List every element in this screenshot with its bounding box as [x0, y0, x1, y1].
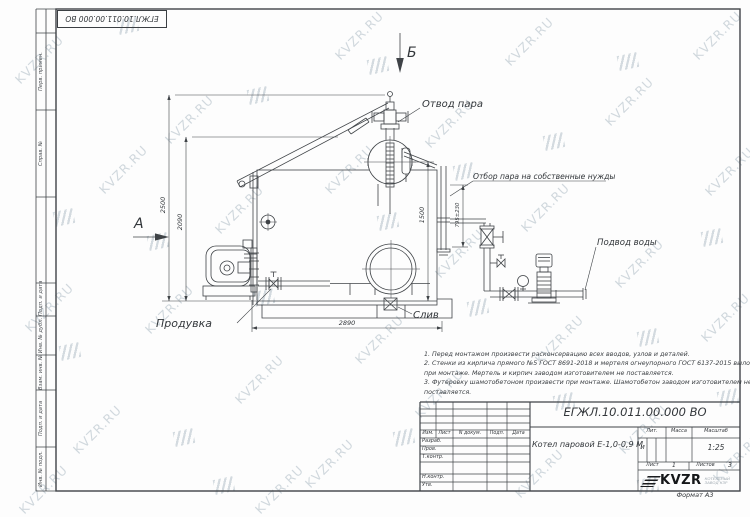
sidebar-label-perv-primen: Перв. примен.	[36, 33, 46, 110]
note-line: при монтаже. Мертель и кирпич заводом из…	[424, 369, 742, 378]
sidebar-label-inv-podl: Инв. № подл.	[36, 447, 46, 491]
sidebar-label-inv-dubl: Инв. № дубл.	[36, 316, 46, 355]
sidebar-label-sprav-no: Справ. №	[36, 110, 46, 197]
tb-sheet-label: Лист	[646, 463, 659, 469]
tb-sheets-label: Листов	[696, 463, 715, 469]
tb-scale-value: 1:25	[692, 444, 740, 452]
note-line: 2. Стенки из кирпича прямого №5 ГОСТ 869…	[424, 359, 742, 368]
title-doc-number: ЕГЖЛ.10.011.00.000 ВО	[530, 406, 740, 419]
top-stamp-doc-number: ЕГЖЛ.10.011.00.000 ВО	[57, 10, 167, 28]
tb-role-tkontr: Т.контр.	[422, 455, 444, 461]
title-product-name: Котел паровой Е-1,0-0,9 М	[532, 441, 636, 450]
kvzr-brand-name: KVZR	[660, 474, 702, 488]
tb-sheet-value: 1	[672, 463, 676, 470]
sidebar-label-podp-data-1: Подп. и дата	[36, 283, 46, 316]
tb-header-doc: N докум.	[453, 431, 487, 436]
note-line: поставляется.	[424, 388, 742, 397]
installation-notes: 1. Перед монтажом произвести расконсерва…	[424, 350, 742, 397]
sidebar-label-vzam-inv: Взам. инв. №	[36, 355, 46, 390]
tb-lit-label: Лит.	[638, 429, 666, 435]
tb-role-nkontr: Н.контр.	[422, 475, 444, 481]
tb-role-utv: Утв.	[422, 483, 433, 489]
tb-role-prov: Пров.	[422, 447, 437, 453]
sidebar-label-podp-data-2: Подп. и дата	[36, 390, 46, 447]
tb-sheets-value: 3	[728, 463, 732, 470]
note-line: 3. Футеровку шамотобетоном произвести пр…	[424, 378, 742, 387]
note-line: 1. Перед монтажом произвести расконсерва…	[424, 350, 742, 359]
brand-sub-line2: ЗАВОД КЗР	[705, 480, 728, 485]
tb-lit-value: и	[638, 444, 647, 452]
company-cell: KVZR КОТЕЛЬНЫЙ ЗАВОД КЗР	[644, 474, 730, 488]
tb-header-date: Дата	[507, 431, 530, 436]
tb-header-list: Лист	[436, 431, 453, 436]
kvzr-brand-subtitle: КОТЕЛЬНЫЙ ЗАВОД КЗР	[705, 477, 730, 486]
tb-header-sign: Подп.	[487, 431, 507, 436]
tb-role-razrab: Разраб.	[422, 439, 442, 445]
tb-mass-label: Масса	[666, 429, 692, 435]
format-label: Формат А3	[650, 492, 740, 499]
tb-header-izm: Изм.	[420, 431, 436, 436]
kvzr-coil-icon	[640, 476, 661, 487]
tb-scale-label: Масштаб	[692, 429, 740, 435]
